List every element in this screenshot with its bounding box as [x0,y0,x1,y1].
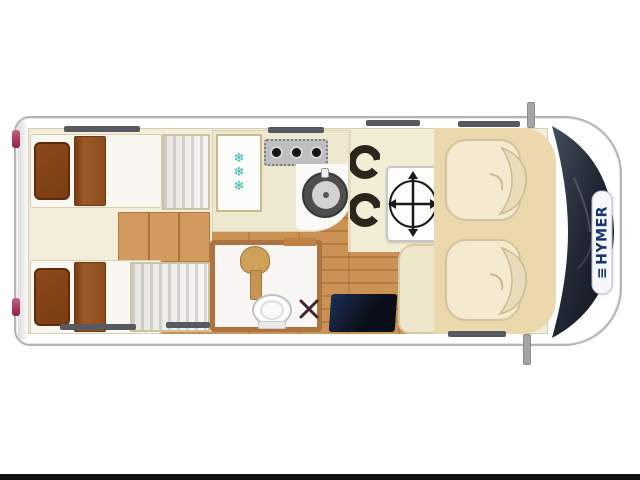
hob-burners [272,148,321,157]
hymer-logo-mark-icon: ≡ [594,267,610,279]
side-mirror-top [527,102,535,128]
table-adjust-arrows-icon [388,168,438,240]
burner-icon [272,148,281,157]
fridge-snowflakes: ❄❄❄ [234,152,245,194]
hymer-logo: ≡ HYMER [592,191,613,295]
sink-drain-icon [323,192,329,198]
window-bar [268,127,324,133]
driver-seat [440,234,542,328]
window-bar [60,324,136,330]
dinette-table [386,166,440,242]
dinette-seats [350,136,380,236]
tail-light-icon [12,298,20,316]
hymer-logo-text: HYMER [594,206,610,265]
step-edge [178,213,180,261]
bed-blanket [74,136,106,206]
snowflake-icon: ❄ [234,180,245,194]
window-bar [458,121,520,127]
burner-icon [292,148,301,157]
step-edge [148,213,150,261]
bedroom-steps [118,212,210,262]
shower-symbol-icon [298,298,320,320]
passenger-seat [440,134,542,228]
floorplan-canvas: ❄❄❄ [0,0,640,480]
hob [264,139,328,166]
bathroom-door-opening [284,238,316,246]
window-bar [166,322,210,328]
bed-blanket [74,262,106,332]
toilet-seat [260,300,284,320]
snowflake-icon: ❄ [234,152,245,166]
tail-light-icon [12,130,20,148]
burner-icon [312,148,321,157]
entry-step-mat [329,294,398,332]
window-bar [366,120,420,126]
wardrobe-top [162,134,210,210]
bed-pillow [34,268,70,326]
fridge: ❄❄❄ [216,134,262,212]
washbasin-pedestal [250,270,262,300]
snowflake-icon: ❄ [234,166,245,180]
faucet-icon [321,168,329,178]
windshield [544,118,628,346]
bottom-letterbox-bar [0,474,640,480]
bed-pillow [34,142,70,200]
toilet-tank [258,321,286,329]
window-bar [448,331,506,337]
side-mirror-bottom [523,334,531,365]
window-bar [64,126,140,132]
